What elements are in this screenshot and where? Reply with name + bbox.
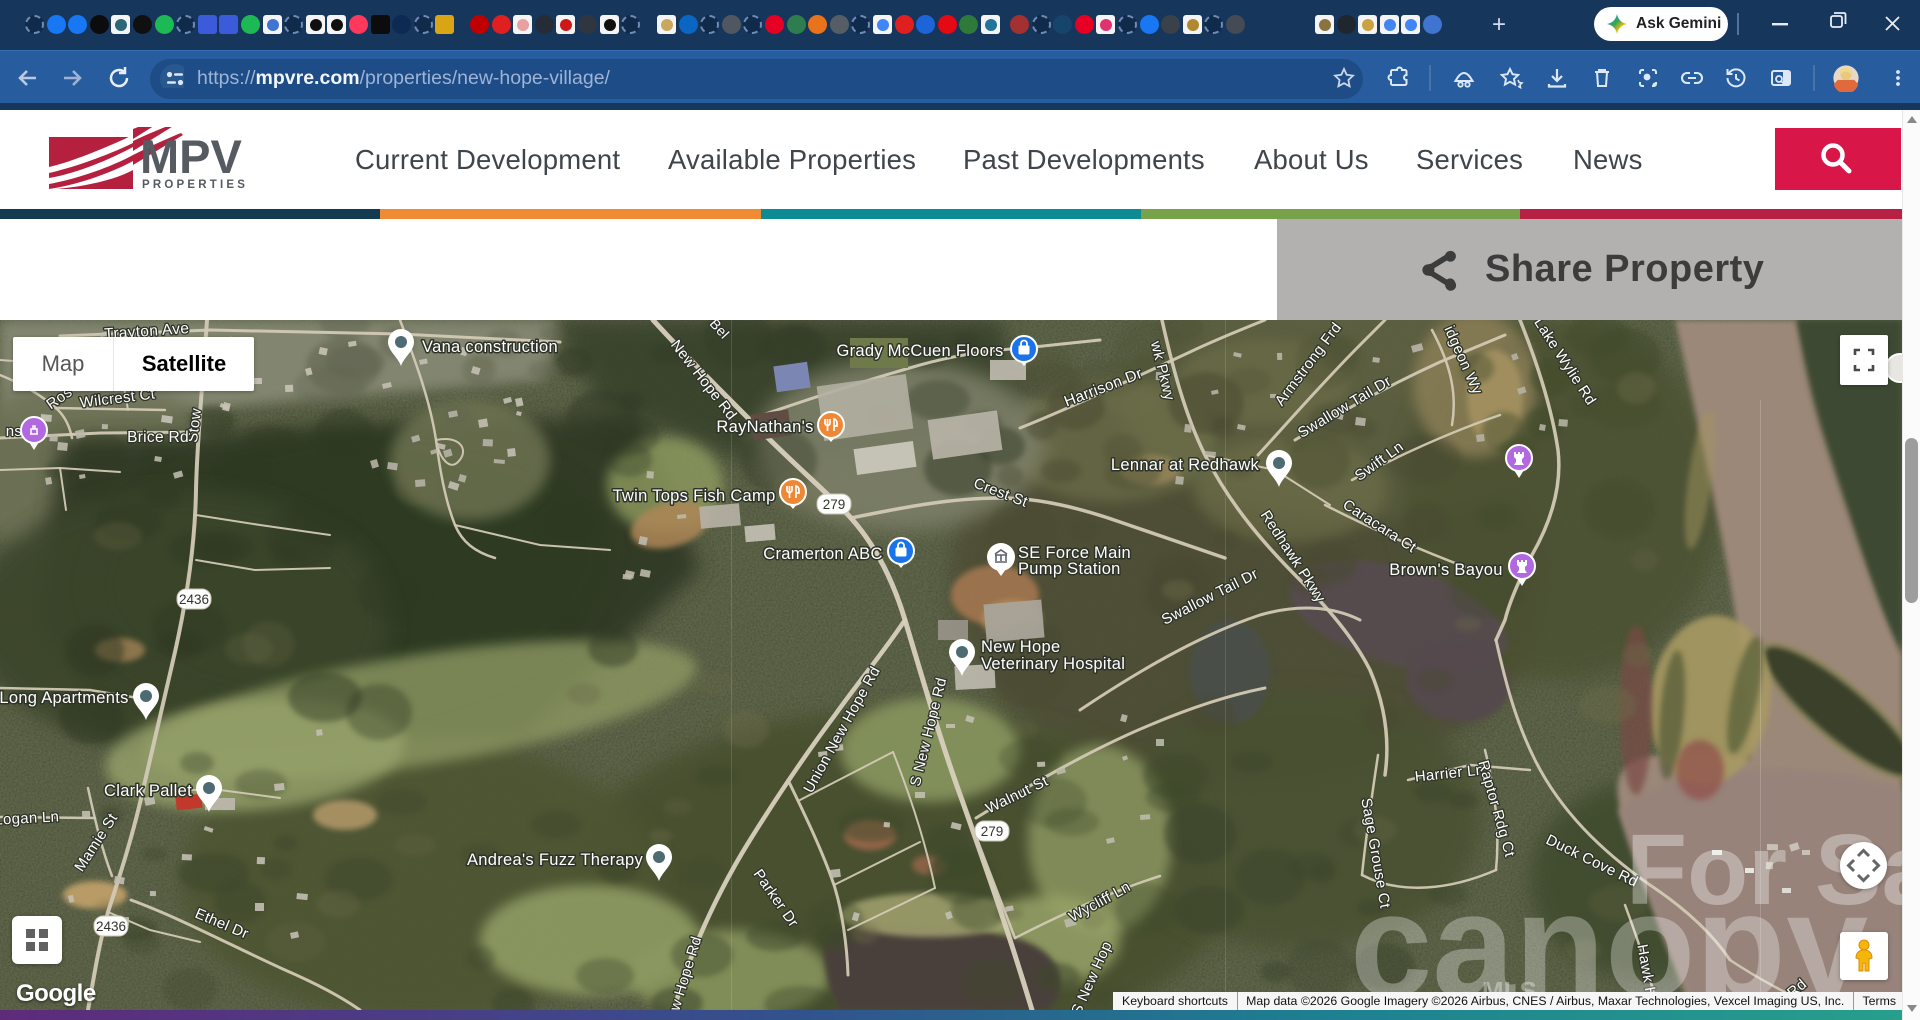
svg-text:Long Apartments: Long Apartments bbox=[0, 689, 129, 707]
svg-text:Andrea's Fuzz Therapy: Andrea's Fuzz Therapy bbox=[467, 851, 644, 869]
svg-text:New Hope: New Hope bbox=[981, 638, 1060, 656]
svg-text:RayNathan's: RayNathan's bbox=[716, 418, 813, 436]
svg-text:Pump Station: Pump Station bbox=[1018, 560, 1121, 578]
svg-text:Grady McCuen Floors: Grady McCuen Floors bbox=[836, 342, 1003, 360]
svg-text:Cramerton ABC: Cramerton ABC bbox=[763, 545, 882, 563]
svg-text:2436: 2436 bbox=[96, 919, 126, 934]
svg-text:ns: ns bbox=[6, 423, 22, 440]
svg-text:Veterinary Hospital: Veterinary Hospital bbox=[981, 655, 1125, 673]
svg-text:Logan Ln: Logan Ln bbox=[0, 808, 60, 828]
svg-text:Brown's Bayou: Brown's Bayou bbox=[1389, 561, 1502, 579]
svg-text:MPV: MPV bbox=[140, 130, 243, 183]
svg-text:PROPERTIES: PROPERTIES bbox=[142, 179, 248, 189]
svg-text:279: 279 bbox=[823, 497, 846, 512]
svg-text:Brice Rd: Brice Rd bbox=[127, 429, 189, 446]
svg-text:Vana construction: Vana construction bbox=[422, 338, 558, 356]
svg-text:Lennar at Redhawk: Lennar at Redhawk bbox=[1111, 456, 1260, 474]
svg-text:2436: 2436 bbox=[179, 592, 209, 607]
svg-text:Twin Tops Fish Camp: Twin Tops Fish Camp bbox=[612, 487, 775, 505]
svg-text:279: 279 bbox=[981, 824, 1004, 839]
svg-text:Clark Pallet: Clark Pallet bbox=[104, 782, 192, 800]
